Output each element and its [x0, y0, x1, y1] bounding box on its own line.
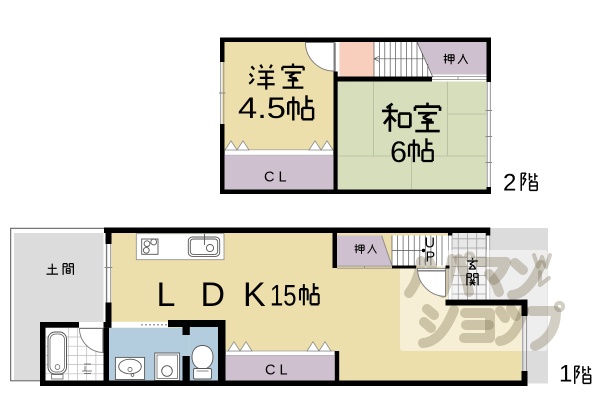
svg-text:K: K: [243, 276, 266, 314]
svg-text:15: 15: [270, 280, 297, 313]
svg-text:4.5: 4.5: [238, 92, 286, 125]
svg-text:D: D: [201, 276, 226, 314]
svg-text:CL: CL: [264, 170, 291, 186]
svg-text:6: 6: [390, 136, 407, 169]
svg-text:1: 1: [559, 361, 572, 388]
svg-text:CL: CL: [265, 363, 292, 379]
svg-text:L: L: [157, 276, 176, 314]
svg-text:2: 2: [503, 170, 516, 197]
svg-text:P: P: [426, 250, 436, 266]
